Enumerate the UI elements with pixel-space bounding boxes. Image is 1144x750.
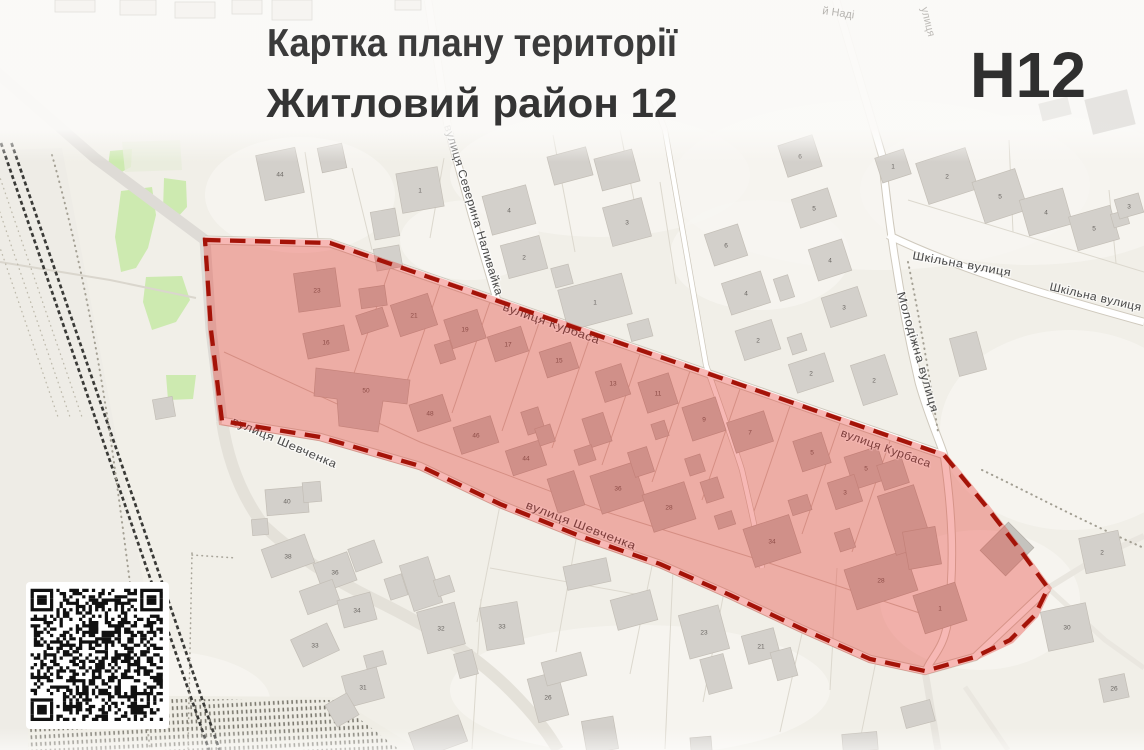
svg-text:40: 40 xyxy=(283,498,291,505)
svg-text:34: 34 xyxy=(353,607,361,614)
svg-text:Житловий район 12: Житловий район 12 xyxy=(265,80,677,126)
svg-text:36: 36 xyxy=(331,569,339,576)
svg-text:1: 1 xyxy=(418,187,422,194)
svg-text:2: 2 xyxy=(756,337,760,344)
svg-text:26: 26 xyxy=(1110,685,1118,692)
svg-text:44: 44 xyxy=(276,171,284,178)
svg-text:33: 33 xyxy=(311,642,319,649)
svg-text:32: 32 xyxy=(437,625,445,632)
svg-text:2: 2 xyxy=(809,370,813,377)
svg-text:3: 3 xyxy=(625,219,629,226)
svg-text:3: 3 xyxy=(1127,203,1131,210)
svg-text:2: 2 xyxy=(522,254,526,261)
svg-text:5: 5 xyxy=(998,193,1002,200)
svg-text:5: 5 xyxy=(812,205,816,212)
svg-text:1: 1 xyxy=(593,299,597,306)
svg-text:4: 4 xyxy=(744,290,748,297)
svg-text:4: 4 xyxy=(828,257,832,264)
svg-text:26: 26 xyxy=(544,694,552,701)
svg-text:3: 3 xyxy=(842,304,846,311)
svg-text:2: 2 xyxy=(872,377,876,384)
svg-text:Картка плану території: Картка плану території xyxy=(267,22,678,65)
svg-text:21: 21 xyxy=(757,643,765,650)
svg-text:33: 33 xyxy=(498,623,506,630)
svg-text:30: 30 xyxy=(1063,624,1071,631)
svg-text:23: 23 xyxy=(700,629,708,636)
svg-text:Н12: Н12 xyxy=(970,39,1086,111)
svg-text:1: 1 xyxy=(891,163,895,170)
svg-text:6: 6 xyxy=(724,242,728,249)
svg-text:2: 2 xyxy=(945,173,949,180)
svg-text:31: 31 xyxy=(359,684,367,691)
svg-text:5: 5 xyxy=(1092,225,1096,232)
svg-text:4: 4 xyxy=(507,207,511,214)
svg-text:2: 2 xyxy=(1100,549,1104,556)
svg-text:4: 4 xyxy=(1044,209,1048,216)
svg-text:38: 38 xyxy=(284,553,292,560)
